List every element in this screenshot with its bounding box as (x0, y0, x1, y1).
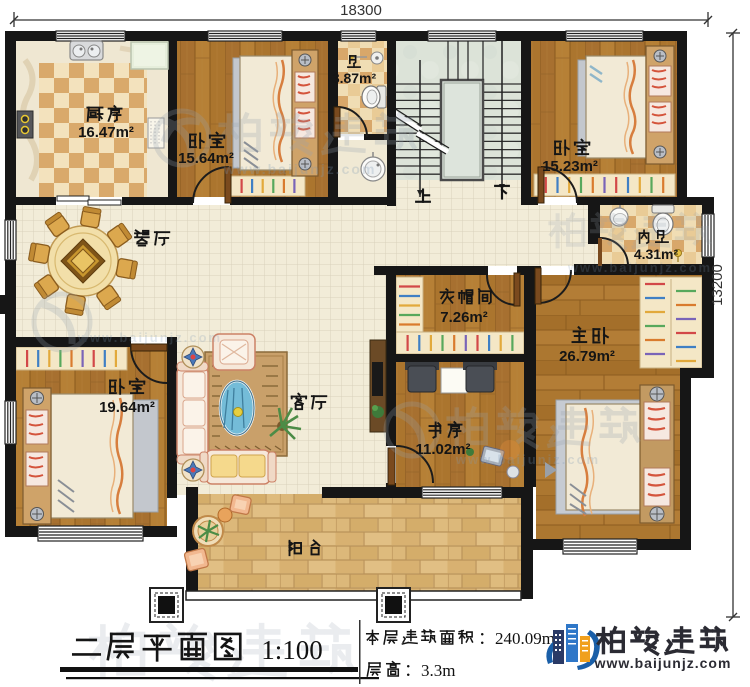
svg-text:www.baijunjz.com: www.baijunjz.com (77, 330, 222, 345)
svg-text:16.47m²: 16.47m² (78, 124, 134, 141)
svg-text:13200: 13200 (709, 264, 726, 306)
svg-text:15.23m²: 15.23m² (542, 158, 598, 175)
svg-text:：240.09m²: ：240.09m² (478, 629, 560, 648)
svg-text:26.79m²: 26.79m² (559, 348, 615, 365)
svg-text:www.baijunjz.com: www.baijunjz.com (223, 161, 377, 177)
svg-text:15.64m²: 15.64m² (178, 150, 234, 167)
svg-text:19.64m²: 19.64m² (99, 399, 155, 416)
svg-text:3.87m²: 3.87m² (332, 70, 377, 86)
svg-text:：3.3m: ：3.3m (404, 661, 455, 680)
svg-text:11.02m²: 11.02m² (415, 441, 470, 458)
svg-text:www.baijunjz.com: www.baijunjz.com (455, 452, 600, 467)
svg-text:1:100: 1:100 (261, 635, 323, 665)
svg-text:7.26m²: 7.26m² (440, 309, 488, 326)
svg-text:www.baijunjz.com: www.baijunjz.com (594, 655, 732, 671)
svg-text:18300: 18300 (340, 2, 382, 19)
svg-text:www.baijunjz.com: www.baijunjz.com (567, 260, 712, 275)
svg-text:4.31m²: 4.31m² (634, 246, 679, 262)
